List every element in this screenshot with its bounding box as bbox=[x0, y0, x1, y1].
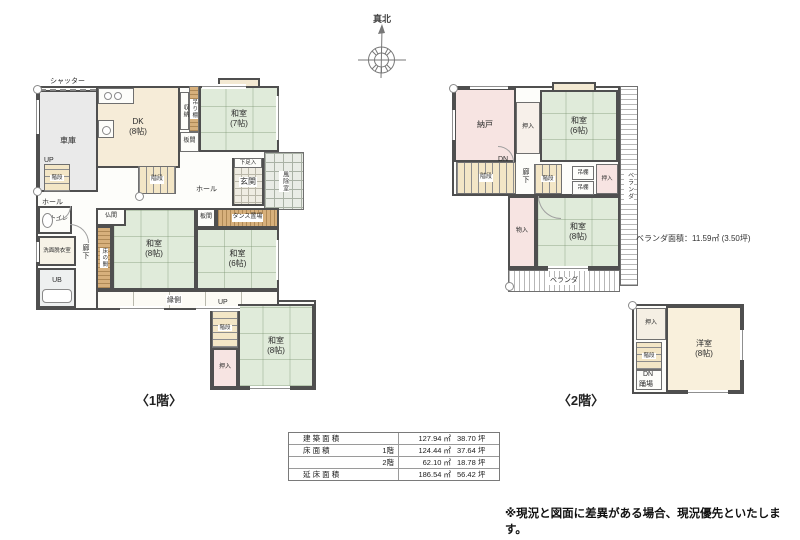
odoriba-label: 踊場 bbox=[639, 379, 653, 389]
washitsu8-2f-label: 和室 (8帖) bbox=[569, 222, 587, 241]
window bbox=[250, 386, 290, 391]
window bbox=[470, 84, 508, 89]
area-sublabel: 2階 bbox=[365, 457, 399, 468]
area-sublabel: 1階 bbox=[365, 445, 399, 456]
window bbox=[688, 390, 728, 395]
area-sqm: 127.94 ㎡ bbox=[399, 433, 457, 444]
oshiire-b-label: 押入 bbox=[601, 176, 612, 183]
tana2-label: 吊棚 bbox=[577, 185, 588, 192]
balcony-right: ベランダ bbox=[620, 86, 638, 286]
table-row: 床 面 積 1階 124.44 ㎡ 37.64 坪 bbox=[289, 444, 499, 456]
alcove-butsuma: 仏間 bbox=[96, 208, 126, 226]
closet-shuno: 収納 bbox=[180, 92, 189, 130]
room-washitsu7: 和室 (7帖) bbox=[199, 86, 279, 152]
washitsu7-label: 和室 (7帖) bbox=[230, 109, 248, 128]
up-label-1: UP bbox=[44, 157, 54, 164]
stairs-2f-label: 階段 bbox=[479, 174, 493, 181]
balcony-bottom: ベランダ bbox=[508, 270, 620, 292]
window bbox=[548, 266, 588, 271]
room-washitsu6-2f: 和室 (6帖) bbox=[540, 90, 618, 162]
toilet-bowl-icon bbox=[42, 213, 53, 228]
area-label: 建 築 面 積 bbox=[289, 433, 365, 444]
survey-mark bbox=[505, 282, 514, 291]
alcove-tokonoma: 床の間 bbox=[96, 226, 112, 290]
area-tsubo: 56.42 坪 bbox=[457, 469, 499, 480]
survey-mark bbox=[449, 84, 458, 93]
area-itanoma-1: 板間 bbox=[180, 132, 199, 152]
room-youshitsu: 洋室 (8帖) bbox=[666, 306, 742, 392]
area-label: 延 床 面 積 bbox=[289, 469, 365, 480]
shutter-line bbox=[40, 89, 96, 91]
disclaimer-text: ※現況と図面に差異がある場合、現況優先といたします。 bbox=[505, 505, 800, 537]
compass-rose-icon bbox=[358, 22, 406, 80]
floor1-caption: 〈1階〉 bbox=[127, 390, 191, 409]
survey-mark bbox=[33, 187, 42, 196]
engawa-label: 縁側 bbox=[166, 295, 182, 305]
dn-label-2: DN bbox=[643, 371, 653, 378]
stairs-annex: 階段 bbox=[212, 308, 238, 348]
closet-monoiri: 物入 bbox=[508, 196, 536, 268]
tansu-label: タンス置場 bbox=[232, 214, 264, 221]
window bbox=[450, 110, 455, 140]
monoiri-label: 物入 bbox=[516, 228, 528, 235]
room-washitsu6: 和室 (6帖) bbox=[196, 228, 279, 290]
floor2-caption: 〈2階〉 bbox=[549, 390, 613, 409]
getabako-label: 下足入 bbox=[240, 160, 257, 167]
area-sqm: 124.44 ㎡ bbox=[399, 445, 457, 456]
area-sqm: 186.54 ㎡ bbox=[399, 469, 457, 480]
survey-mark bbox=[33, 85, 42, 94]
area-table: 建 築 面 積 127.94 ㎡ 38.70 坪 床 面 積 1階 124.44… bbox=[288, 432, 500, 481]
window bbox=[202, 84, 246, 89]
oshiire-a-label: 押入 bbox=[522, 124, 534, 131]
area-tsubo: 38.70 坪 bbox=[457, 433, 499, 444]
shelf-tana-2: 吊棚 bbox=[572, 181, 594, 195]
stove-burner-icon bbox=[104, 92, 112, 100]
room-washitsu8-annex: 和室 (8帖) bbox=[238, 304, 314, 388]
shelf-tana-1: 吊棚 bbox=[572, 166, 594, 180]
washitsu6-2f-label: 和室 (6帖) bbox=[570, 116, 588, 135]
butsuma-label: 仏間 bbox=[105, 213, 117, 220]
ub-label: UB bbox=[52, 277, 62, 285]
table-row: 2階 62.10 ㎡ 18.78 坪 bbox=[289, 456, 499, 468]
veranda-right-label: ベランダ bbox=[624, 172, 633, 200]
itanoma2-label: 板間 bbox=[200, 214, 212, 221]
genkan-label: 玄関 bbox=[239, 177, 257, 187]
window bbox=[740, 330, 745, 360]
hall1-label: ホール bbox=[196, 184, 217, 194]
area-tsubo: 18.78 坪 bbox=[457, 457, 499, 468]
shutter-label: シャッター bbox=[50, 76, 85, 86]
oshiire1-label: 押入 bbox=[219, 364, 231, 371]
veranda-bottom-label: ベランダ bbox=[549, 277, 579, 285]
bathtub-icon bbox=[42, 289, 72, 303]
stairs-garage-label: 階段 bbox=[50, 175, 63, 182]
closet-oshiire-2f-mid: 押入 bbox=[596, 164, 618, 194]
room-fujo: 風除室 bbox=[264, 152, 304, 210]
stairs-2f-main: 階段 bbox=[456, 162, 516, 194]
stairs-garage: 階段 bbox=[44, 164, 70, 192]
stairs-2f-small: 階段 bbox=[534, 164, 562, 194]
closet-oshiire-2f-top: 押入 bbox=[516, 102, 540, 154]
window bbox=[196, 306, 240, 311]
shuno-label: 収納 bbox=[181, 104, 188, 118]
rouka-label: 廊下 bbox=[80, 244, 90, 260]
dk-label: DK (8帖) bbox=[129, 117, 147, 136]
stairs-annex-label: 階段 bbox=[218, 325, 231, 332]
washitsu8b-label: 和室 (8帖) bbox=[267, 336, 285, 355]
area-tansu: タンス置場 bbox=[216, 208, 279, 228]
senmen-label: 洗面脱衣室 bbox=[43, 248, 71, 255]
rouka-2f-label: 廊下 bbox=[520, 168, 530, 184]
area-sublabel bbox=[365, 469, 399, 480]
sink-bowl-icon bbox=[102, 126, 111, 135]
tsuridana-label: 吊り棚 bbox=[190, 99, 199, 119]
garage-label: 車庫 bbox=[60, 136, 76, 146]
up-label-2: UP bbox=[218, 299, 228, 306]
window bbox=[120, 306, 164, 311]
fujo-label: 風除室 bbox=[279, 171, 288, 192]
window bbox=[34, 242, 39, 262]
shoe-cabinet: 下足入 bbox=[234, 158, 262, 168]
stairs-2f-small-label: 階段 bbox=[541, 176, 554, 183]
nando-label: 納戸 bbox=[477, 120, 493, 130]
table-row: 延 床 面 積 186.54 ㎡ 56.42 坪 bbox=[289, 468, 499, 480]
table-row: 建 築 面 積 127.94 ㎡ 38.70 坪 bbox=[289, 433, 499, 444]
closet-oshiire-annex: 押入 bbox=[212, 348, 238, 388]
stairs-center-label: 階段 bbox=[150, 176, 164, 183]
area-tsubo: 37.64 坪 bbox=[457, 445, 499, 456]
area-sqm: 62.10 ㎡ bbox=[399, 457, 457, 468]
shelf-tsuridana: 吊り棚 bbox=[189, 86, 199, 132]
survey-mark bbox=[135, 192, 144, 201]
stairs-2f-annex-label: 階段 bbox=[642, 353, 655, 360]
window bbox=[276, 96, 281, 140]
survey-mark bbox=[628, 301, 637, 310]
window bbox=[276, 240, 281, 280]
area-itanoma-2: 板間 bbox=[196, 208, 216, 228]
tana1-label: 吊棚 bbox=[577, 170, 588, 177]
stairs-2f-annex: 階段 bbox=[636, 342, 662, 370]
washitsu8a-label: 和室 (8帖) bbox=[145, 239, 163, 258]
area-sublabel bbox=[365, 433, 399, 444]
veranda-area-note: ベランダ面積：11.59㎡ (3.50坪) bbox=[636, 233, 751, 244]
tokonoma-label: 床の間 bbox=[100, 248, 109, 268]
stove-burner-icon bbox=[114, 92, 122, 100]
stairs-center: 階段 bbox=[138, 166, 176, 194]
area-label: 床 面 積 bbox=[289, 445, 365, 456]
youshitsu-label: 洋室 (8帖) bbox=[695, 339, 713, 358]
washitsu6-label: 和室 (6帖) bbox=[229, 249, 247, 268]
oshiire-c-label: 押入 bbox=[645, 320, 657, 327]
floor-plan-page: 真北 シャッター 車庫 UP 階段 DK (8帖) bbox=[0, 0, 800, 540]
closet-oshiire-2f-annex: 押入 bbox=[636, 308, 666, 340]
itanoma1-label: 板間 bbox=[183, 138, 195, 145]
window bbox=[34, 100, 39, 134]
